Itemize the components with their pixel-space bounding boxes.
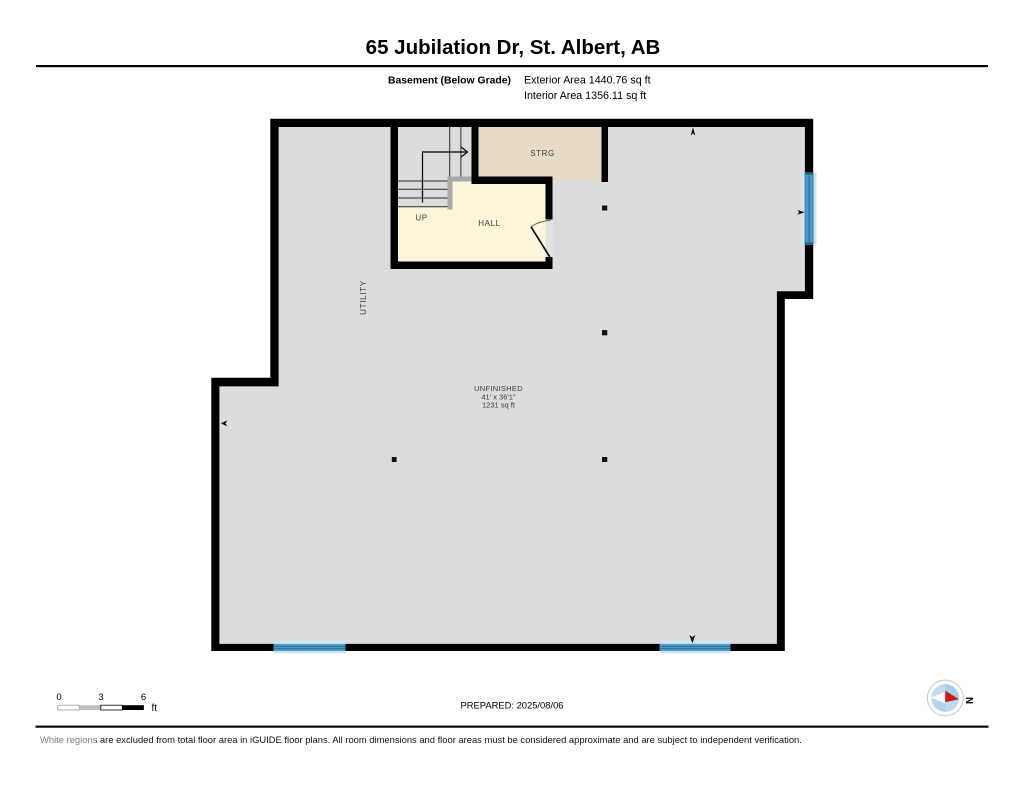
svg-text:UTILITY: UTILITY [359, 280, 368, 315]
svg-text:Basement (Below Grade): Basement (Below Grade) [388, 76, 511, 87]
svg-text:N: N [963, 697, 974, 704]
svg-text:White regions are excluded fro: White regions are excluded from total fl… [40, 734, 802, 745]
svg-text:0: 0 [56, 692, 61, 703]
svg-text:HALL: HALL [478, 219, 500, 228]
svg-text:ft: ft [152, 703, 158, 714]
svg-text:3: 3 [98, 692, 103, 703]
svg-text:STRG: STRG [530, 149, 555, 158]
svg-text:Exterior Area 1440.76 sq ft: Exterior Area 1440.76 sq ft [524, 75, 651, 87]
svg-text:PREPARED: 2025/08/06: PREPARED: 2025/08/06 [460, 700, 563, 711]
svg-text:1231 sq ft: 1231 sq ft [482, 401, 516, 410]
svg-text:UP: UP [415, 214, 427, 223]
svg-text:6: 6 [141, 692, 146, 703]
svg-text:Interior Area 1356.11 sq ft: Interior Area 1356.11 sq ft [524, 90, 646, 102]
svg-text:65 Jubilation Dr, St. Albert,: 65 Jubilation Dr, St. Albert, AB [366, 36, 661, 59]
